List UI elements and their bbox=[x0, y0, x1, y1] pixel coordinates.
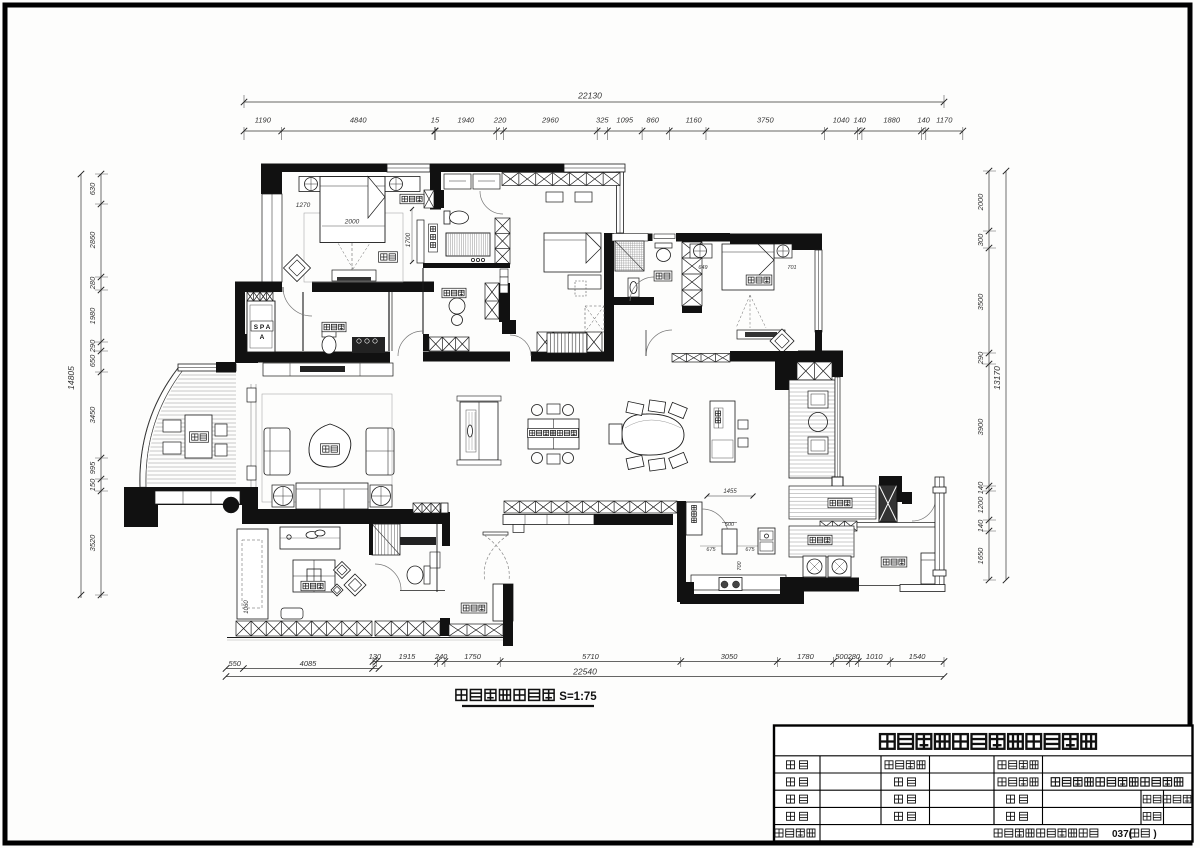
svg-text:1160: 1160 bbox=[686, 116, 703, 125]
svg-text:325: 325 bbox=[596, 116, 609, 125]
svg-text:3900: 3900 bbox=[976, 418, 985, 436]
svg-text:1540: 1540 bbox=[909, 652, 927, 661]
svg-text:1940: 1940 bbox=[458, 116, 476, 125]
svg-text:140: 140 bbox=[917, 116, 930, 125]
svg-text:290: 290 bbox=[976, 351, 985, 365]
svg-text:4840: 4840 bbox=[350, 116, 368, 125]
svg-text:140: 140 bbox=[976, 481, 985, 494]
svg-text:650: 650 bbox=[88, 354, 97, 367]
svg-text:1750: 1750 bbox=[464, 652, 482, 661]
svg-text:675: 675 bbox=[745, 547, 755, 553]
svg-text:701: 701 bbox=[787, 265, 796, 271]
svg-text:1780: 1780 bbox=[797, 652, 815, 661]
svg-text:1190: 1190 bbox=[255, 116, 272, 125]
svg-text:4085: 4085 bbox=[300, 659, 318, 668]
svg-text:550: 550 bbox=[228, 659, 241, 668]
svg-text:675: 675 bbox=[706, 547, 716, 553]
svg-text:2000: 2000 bbox=[976, 193, 985, 212]
svg-text:S P A: S P A bbox=[254, 324, 271, 331]
svg-text:649: 649 bbox=[698, 265, 707, 271]
svg-text:3050: 3050 bbox=[721, 652, 739, 661]
svg-text:1060: 1060 bbox=[244, 600, 250, 614]
svg-text:1040: 1040 bbox=[833, 116, 851, 125]
svg-text:22130: 22130 bbox=[577, 91, 602, 101]
svg-text:280: 280 bbox=[847, 652, 861, 661]
svg-text:15: 15 bbox=[431, 116, 440, 125]
svg-text:500: 500 bbox=[835, 652, 848, 661]
svg-text:1200: 1200 bbox=[976, 496, 985, 514]
svg-text:13170: 13170 bbox=[992, 366, 1002, 390]
svg-text:5710: 5710 bbox=[582, 652, 600, 661]
svg-text:1880: 1880 bbox=[883, 116, 901, 125]
svg-text:S=1:75: S=1:75 bbox=[559, 691, 597, 703]
svg-text:2000: 2000 bbox=[344, 219, 360, 226]
svg-text:1650: 1650 bbox=[976, 547, 985, 565]
svg-text:3500: 3500 bbox=[976, 293, 985, 311]
svg-text:150: 150 bbox=[88, 478, 97, 491]
svg-text:290: 290 bbox=[88, 339, 97, 353]
svg-text:14805: 14805 bbox=[66, 366, 76, 390]
svg-text:140: 140 bbox=[976, 519, 985, 532]
svg-text:220: 220 bbox=[493, 116, 507, 125]
svg-text:22540: 22540 bbox=[572, 667, 597, 677]
svg-text:3450: 3450 bbox=[88, 406, 97, 424]
svg-text:700: 700 bbox=[737, 560, 743, 570]
svg-text:1455: 1455 bbox=[723, 489, 737, 495]
svg-text:280: 280 bbox=[88, 276, 97, 290]
svg-text:140: 140 bbox=[853, 116, 866, 125]
svg-text:1270: 1270 bbox=[296, 202, 311, 209]
svg-text:A: A bbox=[260, 334, 265, 341]
svg-text:630: 630 bbox=[88, 182, 97, 195]
svg-text:1700: 1700 bbox=[405, 232, 412, 247]
svg-text:1170: 1170 bbox=[936, 116, 953, 125]
svg-text:037(: 037( bbox=[1112, 829, 1133, 840]
svg-text:300: 300 bbox=[976, 233, 985, 246]
svg-text:1010: 1010 bbox=[866, 652, 884, 661]
svg-text:3520: 3520 bbox=[88, 534, 97, 552]
svg-text:3750: 3750 bbox=[757, 116, 775, 125]
svg-text:500: 500 bbox=[725, 522, 735, 528]
svg-text:2960: 2960 bbox=[541, 116, 560, 125]
svg-text:860: 860 bbox=[646, 116, 659, 125]
svg-text:1980: 1980 bbox=[88, 307, 97, 325]
svg-text:2860: 2860 bbox=[88, 231, 97, 250]
svg-text:1915: 1915 bbox=[399, 652, 417, 661]
svg-text:): ) bbox=[1153, 829, 1156, 840]
svg-text:240: 240 bbox=[434, 652, 448, 661]
svg-text:1095: 1095 bbox=[616, 116, 634, 125]
svg-text:995: 995 bbox=[88, 461, 97, 474]
